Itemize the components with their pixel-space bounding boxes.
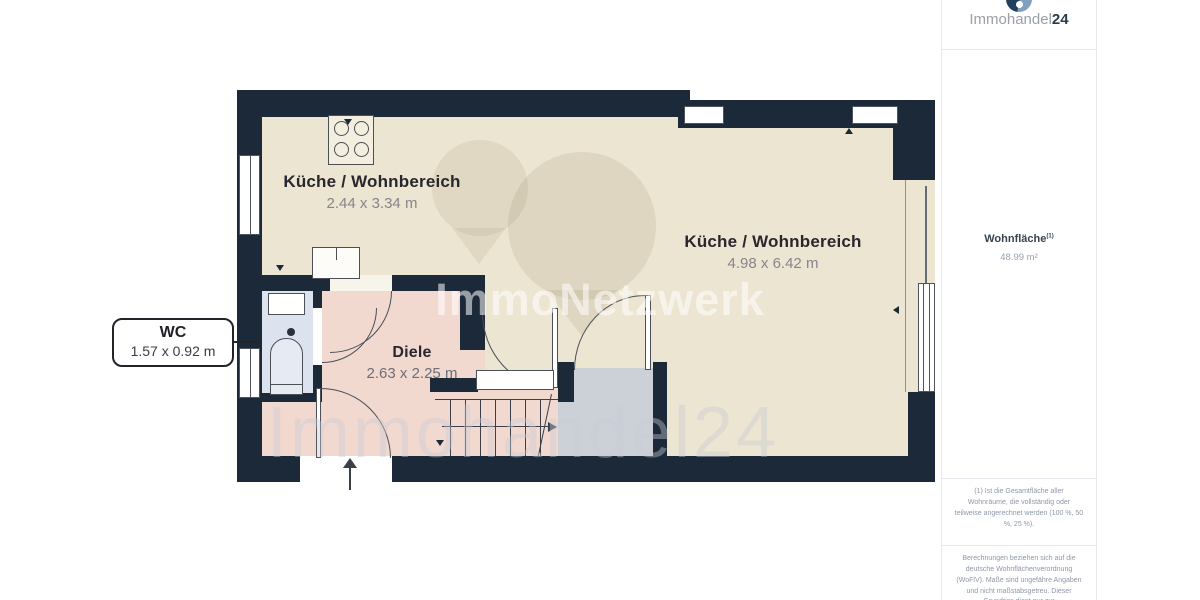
dimension-arrow-icon [344, 119, 352, 125]
room-label-kitchen-right: Küche / Wohnbereich 4.98 x 6.42 m [658, 232, 888, 272]
wc-callout: WC 1.57 x 0.92 m [112, 318, 234, 367]
wall-right-top [893, 100, 935, 180]
brand-logo-text: Immohandel24 [942, 11, 1096, 28]
watermark-center: ImmoNetzwerk [415, 274, 785, 326]
dimension-arrow-icon [893, 306, 899, 314]
logo-section: Immohandel24 [942, 0, 1096, 49]
window-right-tall [918, 283, 935, 392]
room-dims: 2.63 x 2.25 m [347, 365, 477, 382]
room-dims: 4.98 x 6.42 m [658, 255, 888, 272]
room-label-hall: Diele 2.63 x 2.25 m [347, 344, 477, 382]
footnote-1: (1) Ist die Gesamtfläche aller Wohnräume… [942, 478, 1096, 530]
door-opening-wc [313, 308, 322, 365]
window-left-kitchen [239, 155, 260, 235]
room-name: Küche / Wohnbereich [277, 172, 467, 192]
room-edge-line [905, 180, 906, 392]
floor-plan: ImmoNetzwerk Immohandel24 Küche / Wohnbe… [0, 0, 941, 600]
wc-valve-icon [287, 328, 295, 336]
dimension-arrow-icon [276, 265, 284, 271]
room-name: Küche / Wohnbereich [658, 232, 888, 252]
watermark-bottom: Immohandel24 [168, 392, 878, 474]
room-dims: 2.44 x 3.34 m [277, 195, 467, 212]
footnote-text: (1) Ist die Gesamtfläche aller Wohnräume… [942, 478, 1096, 530]
room-dims: 1.57 x 0.92 m [114, 343, 232, 359]
wall-top-left [237, 90, 690, 117]
wall-right-bottom [908, 392, 935, 482]
dimension-arrow-icon [845, 128, 853, 134]
sink-icon [312, 247, 360, 279]
dimension-arrow-icon [248, 252, 254, 260]
window-top-2 [852, 106, 898, 124]
area-label: Wohnfläche(1) [942, 233, 1096, 245]
door-leaf-right [925, 186, 927, 283]
window-top-1 [684, 106, 724, 124]
wc-sink-icon [268, 293, 305, 315]
area-section: Wohnfläche(1) 48.99 m² [942, 233, 1096, 263]
info-sidebar: Immohandel24 Wohnfläche(1) 48.99 m² (1) … [941, 0, 1097, 600]
area-footnote-marker: (1) [1046, 233, 1053, 239]
footnote-2: Berechnungen beziehen sich auf die deuts… [942, 545, 1096, 600]
counter [476, 370, 554, 390]
room-name: Diele [347, 344, 477, 362]
watermark-logo-shape [452, 228, 506, 264]
footnote-text: Berechnungen beziehen sich auf die deuts… [942, 545, 1096, 600]
room-label-kitchen-left: Küche / Wohnbereich 2.44 x 3.34 m [277, 172, 467, 212]
window-left-wc [239, 348, 260, 398]
toilet-icon [270, 338, 303, 386]
floorplan-page: ImmoNetzwerk Immohandel24 Küche / Wohnbe… [0, 0, 1200, 600]
room-name: WC [114, 324, 232, 342]
area-value: 48.99 m² [942, 252, 1096, 263]
